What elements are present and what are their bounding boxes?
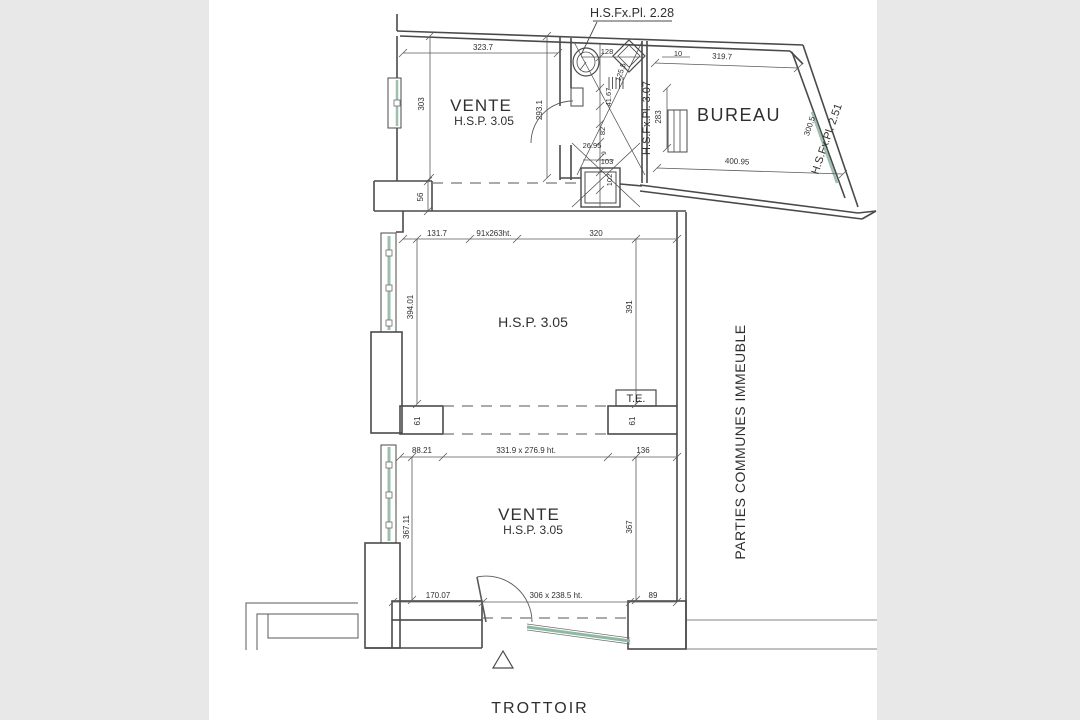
dashed-openings bbox=[432, 183, 628, 618]
dim-main-seg1: 131.7 bbox=[427, 229, 448, 238]
vente-bottom-ceiling: H.S.P. 3.05 bbox=[503, 523, 563, 537]
dim-bath-103: 103 bbox=[601, 157, 614, 166]
dim-vente-top-left: 303 bbox=[417, 97, 426, 111]
shaft bbox=[581, 168, 620, 207]
floor-plan-page: H.S.Fx.Pl. 2.28 VENTE H.S.P. 3.05 BUREAU… bbox=[0, 0, 1080, 720]
trottoir-label: TROTTOIR bbox=[491, 700, 588, 717]
dim-bath-10: 10 bbox=[674, 49, 682, 58]
plan-text: H.S.Fx.Pl. 2.28 VENTE H.S.P. 3.05 BUREAU… bbox=[402, 6, 845, 717]
dim-bureau-left: 283 bbox=[654, 110, 663, 124]
dim-lower-right: 367 bbox=[625, 520, 634, 534]
dim-bureau-right: 300.5 bbox=[802, 115, 817, 137]
dim-bureau-top: 319.7 bbox=[712, 51, 733, 61]
dim-bottom-door: 306 x 238.5 ht. bbox=[530, 591, 583, 600]
dim-bath-26-95: 26.95 bbox=[583, 141, 602, 150]
dim-bath-125-5: 125.5 bbox=[613, 62, 627, 83]
vente-top-ceiling: H.S.P. 3.05 bbox=[454, 114, 514, 128]
dim-lower-seg3: 136 bbox=[636, 446, 650, 455]
dim-lower-left: 367.11 bbox=[402, 515, 411, 539]
dim-main-right: 391 bbox=[625, 300, 634, 314]
entrance-triangle-icon bbox=[493, 651, 513, 668]
dim-main-left: 394.01 bbox=[406, 294, 415, 319]
vente-bottom-name: VENTE bbox=[498, 505, 560, 524]
dim-vente-top-right: 293.1 bbox=[535, 99, 544, 120]
walls bbox=[365, 14, 876, 649]
vente-top-name: VENTE bbox=[450, 96, 512, 115]
dim-bottom-seg3: 89 bbox=[649, 591, 658, 600]
dim-bath-82: 82 bbox=[598, 127, 607, 135]
dim-passage-left: 61 bbox=[413, 416, 422, 425]
dim-bath-41-67: 41.67 bbox=[604, 88, 613, 107]
dim-main-seg3: 320 bbox=[589, 229, 603, 238]
door-swings bbox=[477, 101, 573, 622]
dim-bottom-seg1: 170.07 bbox=[426, 591, 451, 600]
dim-bureau-bottom: 400.95 bbox=[725, 156, 750, 166]
dim-bath-128: 128 bbox=[601, 47, 614, 56]
sink-icon bbox=[573, 48, 599, 76]
dim-vente-top-width: 323.7 bbox=[473, 43, 494, 52]
parties-communes-label: PARTIES COMMUNES IMMEUBLE bbox=[732, 324, 748, 559]
te-label: T.E. bbox=[627, 393, 646, 405]
bureau-ceiling-left: H.S.Fx.Pl. 3.07 bbox=[641, 81, 653, 155]
dim-wall-56: 56 bbox=[416, 192, 425, 201]
bureau-name: BUREAU bbox=[697, 105, 781, 125]
dim-passage-right: 61 bbox=[628, 416, 637, 425]
floor-plan-drawing: H.S.Fx.Pl. 2.28 VENTE H.S.P. 3.05 BUREAU… bbox=[0, 0, 1080, 720]
dim-bath-9: 9 bbox=[601, 151, 608, 155]
entrance-door-arc bbox=[477, 576, 532, 622]
dim-lower-opening: 331.9 x 276.9 ht. bbox=[496, 446, 556, 455]
site-outline bbox=[246, 603, 877, 650]
entrance-glass-door bbox=[527, 624, 630, 644]
dim-main-door: 91x263ht. bbox=[476, 229, 511, 238]
main-ceiling: H.S.P. 3.05 bbox=[498, 314, 568, 330]
dim-lower-seg1: 88.21 bbox=[412, 446, 433, 455]
dim-shaft-102: 102 bbox=[605, 174, 614, 187]
ceiling-note-top: H.S.Fx.Pl. 2.28 bbox=[590, 6, 674, 20]
